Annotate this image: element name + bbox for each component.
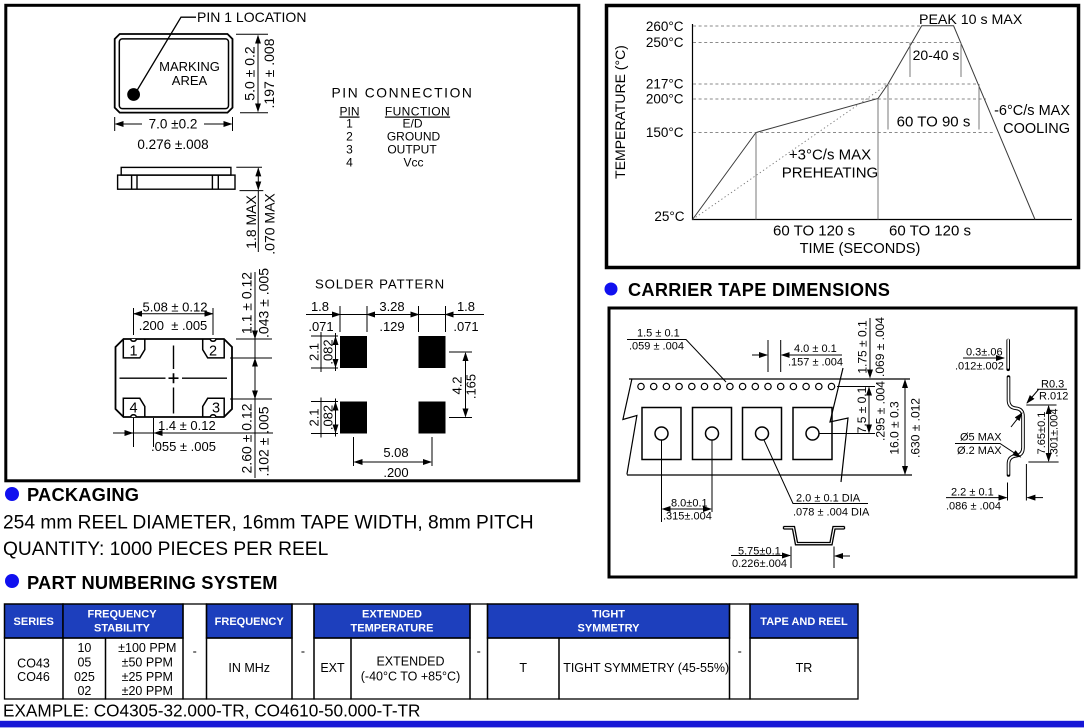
svg-text:TIME (SECONDS): TIME (SECONDS) <box>800 241 921 257</box>
svg-text:±100 PPM: ±100 PPM <box>118 641 176 655</box>
svg-text:.197 ± .008: .197 ± .008 <box>261 38 277 108</box>
svg-text:Ø5 MAX: Ø5 MAX <box>960 432 1002 444</box>
svg-text:±25 PPM: ±25 PPM <box>122 670 173 684</box>
svg-text:.071: .071 <box>453 319 478 334</box>
svg-text:-6°C/s MAX: -6°C/s MAX <box>994 103 1070 119</box>
svg-text:R0.3: R0.3 <box>1041 379 1064 391</box>
svg-text:1.8: 1.8 <box>311 299 329 314</box>
svg-text:7.5 ± 0.1: 7.5 ± 0.1 <box>855 386 869 433</box>
svg-text:.157 ± .004: .157 ± .004 <box>788 357 843 369</box>
svg-text:PACKAGING: PACKAGING <box>27 484 139 505</box>
svg-text:.301±.004: .301±.004 <box>1049 409 1061 458</box>
svg-text:150°C: 150°C <box>646 125 684 140</box>
svg-text:.071: .071 <box>308 319 333 334</box>
svg-text:2.1: 2.1 <box>307 343 322 361</box>
svg-text:GROUND: GROUND <box>387 130 441 144</box>
svg-text:10: 10 <box>77 641 91 655</box>
svg-text:SYMMETRY: SYMMETRY <box>578 623 641 635</box>
svg-text:+3°C/s MAX: +3°C/s MAX <box>789 147 871 164</box>
svg-text:250°C: 250°C <box>646 35 684 50</box>
svg-text:TEMPERATURE: TEMPERATURE <box>351 623 434 635</box>
svg-text:0.276 ±.008: 0.276 ±.008 <box>137 137 208 152</box>
svg-text:3: 3 <box>346 143 353 157</box>
svg-text:STABILITY: STABILITY <box>94 623 151 635</box>
svg-text:AREA: AREA <box>172 73 208 88</box>
svg-text:CO43: CO43 <box>17 657 50 671</box>
svg-text:PEAK 10 s MAX: PEAK 10 s MAX <box>919 12 1023 28</box>
svg-text:.129: .129 <box>379 319 404 334</box>
svg-text:200°C: 200°C <box>646 92 684 107</box>
svg-text:2.0 ± 0.1 DIA: 2.0 ± 0.1 DIA <box>796 493 861 505</box>
svg-text:PART NUMBERING SYSTEM: PART NUMBERING SYSTEM <box>27 572 278 593</box>
svg-text:1: 1 <box>346 117 353 131</box>
svg-text:02: 02 <box>77 684 91 698</box>
svg-text:CO46: CO46 <box>17 670 50 684</box>
svg-text:3: 3 <box>212 401 220 417</box>
svg-text:IN MHz: IN MHz <box>228 661 270 675</box>
svg-text:05: 05 <box>77 656 91 670</box>
svg-text:260°C: 260°C <box>646 19 684 34</box>
svg-text:E/D: E/D <box>402 117 422 131</box>
svg-text:5.08 ± 0.12: 5.08 ± 0.12 <box>143 300 208 315</box>
svg-text:.043 ± .005: .043 ± .005 <box>255 268 271 338</box>
svg-text:SERIES: SERIES <box>14 616 54 628</box>
svg-text:EXAMPLE: CO4305-32.000-TR, CO4: EXAMPLE: CO4305-32.000-TR, CO4610-50.000… <box>3 701 420 721</box>
svg-text:4: 4 <box>130 401 138 417</box>
svg-text:4: 4 <box>346 156 353 170</box>
svg-text:-: - <box>301 645 305 659</box>
svg-text:.069 ± .004: .069 ± .004 <box>873 317 887 377</box>
svg-text:7.0 ±0.2: 7.0 ±0.2 <box>149 117 198 132</box>
svg-text:1.1 ± 0.12: 1.1 ± 0.12 <box>239 272 255 334</box>
svg-text:1.8 MAX: 1.8 MAX <box>243 195 259 249</box>
svg-text:.102 ± .005: .102 ± .005 <box>256 406 272 476</box>
svg-text:60 TO 120 s: 60 TO 120 s <box>773 223 855 240</box>
svg-text:2: 2 <box>209 344 217 360</box>
svg-text:.295 ± .004: .295 ± .004 <box>874 381 888 441</box>
svg-text:(-40°C TO +85°C): (-40°C TO +85°C) <box>361 670 461 684</box>
svg-text:TAPE AND REEL: TAPE AND REEL <box>760 616 848 628</box>
svg-text:.012±.002: .012±.002 <box>955 361 1004 373</box>
svg-text:4.2: 4.2 <box>450 376 465 394</box>
svg-text:2.60 ± 0.12: 2.60 ± 0.12 <box>239 403 255 473</box>
svg-text:025: 025 <box>74 670 95 684</box>
svg-text:0.3±.06: 0.3±.06 <box>966 347 1003 359</box>
svg-text:T: T <box>519 661 527 675</box>
svg-text:EXT: EXT <box>320 661 345 675</box>
svg-text:20-40 s: 20-40 s <box>913 47 960 63</box>
svg-text:Ø.2 MAX: Ø.2 MAX <box>957 445 1002 457</box>
svg-text:60 TO 90 s: 60 TO 90 s <box>897 114 971 131</box>
svg-text:2.2 ± 0.1: 2.2 ± 0.1 <box>951 487 994 499</box>
svg-text:1.8: 1.8 <box>457 299 475 314</box>
svg-text:SOLDER PATTERN: SOLDER PATTERN <box>315 277 445 292</box>
svg-text:217°C: 217°C <box>646 77 684 92</box>
svg-text:Vcc: Vcc <box>403 156 423 170</box>
svg-text:0.226±.004: 0.226±.004 <box>732 558 787 570</box>
svg-text:16.0 ± 0.3: 16.0 ± 0.3 <box>888 401 902 455</box>
svg-text:25°C: 25°C <box>654 209 684 224</box>
svg-text:.165: .165 <box>464 374 479 399</box>
svg-text:OUTPUT: OUTPUT <box>387 143 437 157</box>
svg-text:PIN CONNECTION: PIN CONNECTION <box>332 86 474 101</box>
svg-text:60 TO 120 s: 60 TO 120 s <box>889 223 971 240</box>
svg-text:5.0 ± 0.2: 5.0 ± 0.2 <box>241 46 257 101</box>
svg-text:.200: .200 <box>383 465 408 480</box>
svg-text:±50 PPM: ±50 PPM <box>122 656 173 670</box>
svg-text:.086 ± .004: .086 ± .004 <box>946 501 1001 513</box>
svg-text:MARKING: MARKING <box>159 59 220 74</box>
svg-text:254 mm REEL DIAMETER, 16mm TAP: 254 mm REEL DIAMETER, 16mm TAPE WIDTH, 8… <box>3 513 534 534</box>
svg-text:R.012: R.012 <box>1039 391 1068 403</box>
svg-text:2.1: 2.1 <box>307 408 322 426</box>
svg-text:.082: .082 <box>321 405 336 430</box>
svg-text:FREQUENCY: FREQUENCY <box>87 609 157 621</box>
svg-text:.200 ± .005: .200 ± .005 <box>139 318 208 333</box>
svg-text:CARRIER TAPE DIMENSIONS: CARRIER TAPE DIMENSIONS <box>628 280 890 300</box>
svg-text:EXTENDED: EXTENDED <box>376 655 444 669</box>
svg-text:4.0 ± 0.1: 4.0 ± 0.1 <box>794 343 837 355</box>
svg-text:5.75±0.1: 5.75±0.1 <box>738 546 781 558</box>
svg-text:QUANTITY: 1000 PIECES PER REEL: QUANTITY: 1000 PIECES PER REEL <box>3 539 329 560</box>
svg-text:3.28: 3.28 <box>379 299 404 314</box>
svg-text:COOLING: COOLING <box>1003 121 1070 137</box>
svg-text:PREHEATING: PREHEATING <box>782 165 878 182</box>
svg-text:.315±.004: .315±.004 <box>663 511 712 523</box>
svg-text:±20 PPM: ±20 PPM <box>122 684 173 698</box>
svg-text:1.5 ± 0.1: 1.5 ± 0.1 <box>637 328 680 340</box>
svg-text:TIGHT SYMMETRY (45-55%): TIGHT SYMMETRY (45-55%) <box>563 661 729 675</box>
svg-text:-: - <box>477 645 481 659</box>
svg-text:5.08: 5.08 <box>383 445 408 460</box>
svg-text:7.65±0.1: 7.65±0.1 <box>1036 412 1048 455</box>
svg-text:.630 ± .012: .630 ± .012 <box>909 398 923 458</box>
svg-text:.082: .082 <box>321 339 336 364</box>
svg-text:.059 ± .004: .059 ± .004 <box>629 341 684 353</box>
svg-text:.055 ± .005: .055 ± .005 <box>151 439 216 454</box>
svg-text:2: 2 <box>346 130 353 144</box>
svg-text:TIGHT: TIGHT <box>592 609 625 621</box>
svg-text:TEMPERATURE (°C): TEMPERATURE (°C) <box>612 45 628 179</box>
svg-text:1.4 ± 0.12: 1.4 ± 0.12 <box>158 418 216 433</box>
svg-text:.070 MAX: .070 MAX <box>261 193 277 255</box>
svg-text:8.0±0.1: 8.0±0.1 <box>671 498 708 510</box>
svg-text:1: 1 <box>130 344 138 360</box>
svg-text:EXTENDED: EXTENDED <box>362 609 422 621</box>
svg-text:-: - <box>738 645 742 659</box>
svg-text:FREQUENCY: FREQUENCY <box>215 616 285 628</box>
svg-text:PIN 1 LOCATION: PIN 1 LOCATION <box>197 9 306 25</box>
svg-text:TR: TR <box>796 661 813 675</box>
svg-text:-: - <box>193 645 197 659</box>
svg-text:.078 ± .004 DIA: .078 ± .004 DIA <box>793 507 870 519</box>
svg-text:1.75 ± 0.1: 1.75 ± 0.1 <box>856 320 870 374</box>
